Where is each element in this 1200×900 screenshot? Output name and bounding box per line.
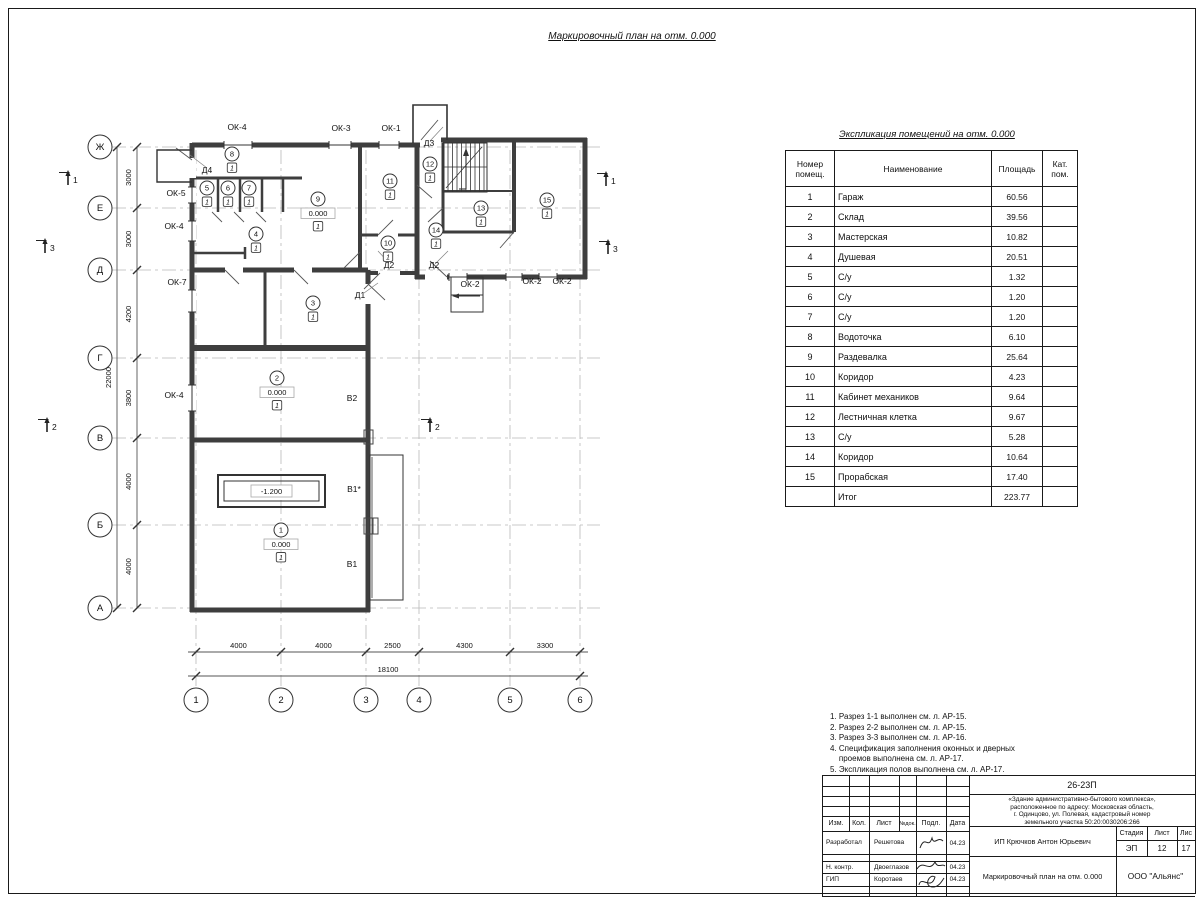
explication-row: 4Душевая20.51: [786, 247, 1078, 267]
svg-text:5: 5: [205, 184, 209, 193]
explication-cell: 15: [786, 467, 835, 487]
room-tag: 131: [474, 201, 488, 226]
svg-text:9: 9: [316, 195, 320, 204]
dimension-total: 18100: [378, 665, 399, 674]
opening-label: Д1: [355, 290, 366, 300]
tb-name-developer: Решетова: [871, 831, 919, 854]
explication-cell: 6.10: [992, 327, 1043, 347]
room-category: 1: [230, 165, 234, 172]
explication-cell: Душевая: [835, 247, 992, 267]
explication-cell: Лестничная клетка: [835, 407, 992, 427]
explication-cell: 10.64: [992, 447, 1043, 467]
col-category: Кат. пом.: [1043, 151, 1078, 187]
explication-cell: [786, 487, 835, 507]
explication-cell: С/у: [835, 307, 992, 327]
section-number: 2: [435, 422, 440, 432]
room-elevation: 0.000: [272, 540, 291, 549]
section-number: 3: [50, 243, 55, 253]
explication-cell: 20.51: [992, 247, 1043, 267]
dimension-value: 4000: [124, 473, 133, 490]
explication-cell: 7: [786, 307, 835, 327]
pit-elevation: -1.200: [261, 487, 282, 496]
dimension-value: 4200: [124, 306, 133, 323]
explication-cell: Коридор: [835, 367, 992, 387]
room-category: 1: [388, 192, 392, 199]
room-category: 1: [247, 199, 251, 206]
svg-text:15: 15: [543, 196, 551, 205]
tb-col-kol: Кол.: [849, 816, 869, 831]
room-tag: 121: [423, 157, 437, 182]
explication-cell: Раздевалка: [835, 347, 992, 367]
explication-cell: 1.32: [992, 267, 1043, 287]
tb-col-izm: Изм.: [823, 816, 849, 831]
opening-label: В1*: [347, 484, 361, 494]
opening-label: В2: [347, 393, 358, 403]
explication-cell: 5.28: [992, 427, 1043, 447]
section-number: 2: [52, 422, 57, 432]
explication-row: 1Гараж60.56: [786, 187, 1078, 207]
room-tag: 41: [249, 227, 263, 252]
tb-name-gip: Коротаев: [871, 873, 919, 886]
explication-cell: 3: [786, 227, 835, 247]
col-number: Номер помещ.: [786, 151, 835, 187]
tb-date-developer: 04.23: [946, 836, 969, 851]
dimension-value: 2500: [384, 641, 401, 650]
explication-cell: 4: [786, 247, 835, 267]
section-marker: 1: [59, 170, 78, 185]
room-category: 1: [254, 245, 258, 252]
tb-company: ООО "Альянс": [1116, 856, 1195, 896]
svg-text:13: 13: [477, 204, 485, 213]
explication-cell: 12: [786, 407, 835, 427]
explication-row: 7С/у1.20: [786, 307, 1078, 327]
explication-cell: 6: [786, 287, 835, 307]
opening-label: ОК-1: [381, 123, 400, 133]
grid-bubble-label: Г: [97, 353, 102, 364]
explication-cell: 60.56: [992, 187, 1043, 207]
explication-cell: 10.82: [992, 227, 1043, 247]
explication-cell: 2: [786, 207, 835, 227]
opening-label: ОК-2: [460, 279, 479, 289]
dimension-value: 4000: [315, 641, 332, 650]
explication-cell: Кабинет механиков: [835, 387, 992, 407]
tb-stage-label: Стадия: [1116, 826, 1147, 840]
section-marker: 2: [38, 417, 57, 432]
section-marker: 3: [599, 239, 618, 254]
tb-col-podl: Подл.: [916, 816, 946, 831]
explication-cell: 1.20: [992, 287, 1043, 307]
explication-cell: Мастерская: [835, 227, 992, 247]
room-category: 1: [434, 241, 438, 248]
svg-text:4: 4: [254, 230, 258, 239]
tb-sheet-value: 12: [1147, 840, 1177, 856]
room-category: 1: [205, 199, 209, 206]
opening-label: ОК-5: [166, 188, 185, 198]
explication-cell: 4.23: [992, 367, 1043, 387]
explication-cell: [1043, 407, 1078, 427]
room-tag: 61: [221, 181, 235, 206]
floor-plan: ЖЕДГВБА123456300030004200380040004000220…: [0, 0, 740, 745]
grid-bubble-label: Б: [97, 520, 103, 531]
svg-text:12: 12: [426, 160, 434, 169]
explication-row: Итог223.77: [786, 487, 1078, 507]
tb-sheet-label: Лист: [1147, 826, 1177, 840]
room-tag: 20.0001: [260, 371, 294, 410]
explication-cell: 5: [786, 267, 835, 287]
tb-col-ndoc: №док.: [899, 816, 916, 831]
grid-bubble-label: В: [97, 433, 103, 444]
tb-role-developer: Разработал: [823, 831, 872, 854]
tb-date-gip: 04.23: [946, 873, 969, 886]
svg-text:10: 10: [384, 239, 392, 248]
room-category: 1: [316, 224, 320, 231]
dimension-value: 3800: [124, 390, 133, 407]
staircase: [443, 143, 487, 192]
grid-bubble-label: Д: [97, 265, 104, 276]
tb-client: ИП Крючков Антон Юрьевич: [969, 826, 1116, 856]
section-marker: 1: [597, 171, 616, 186]
dimension-value: 4000: [230, 641, 247, 650]
explication-cell: Итог: [835, 487, 992, 507]
signature-ncontrol-gip: [915, 857, 947, 893]
explication-title: Экспликация помещений на отм. 0.000: [790, 129, 1064, 140]
room-tag: 101: [381, 236, 395, 261]
opening-label: Д3: [424, 138, 435, 148]
tb-role-ncontrol: Н. контр.: [823, 861, 872, 873]
dimension-value: 4300: [456, 641, 473, 650]
room-category: 1: [275, 403, 279, 410]
explication-cell: 223.77: [992, 487, 1043, 507]
opening-label: ОК-7: [167, 277, 186, 287]
dimension-value: 3000: [124, 169, 133, 186]
explication-cell: [1043, 207, 1078, 227]
svg-text:14: 14: [432, 226, 440, 235]
explication-row: 11Кабинет механиков9.64: [786, 387, 1078, 407]
tb-stage-value: ЭП: [1116, 840, 1147, 856]
explication-row: 9Раздевалка25.64: [786, 347, 1078, 367]
explication-cell: Коридор: [835, 447, 992, 467]
explication-cell: 9.67: [992, 407, 1043, 427]
explication-cell: [1043, 327, 1078, 347]
explication-header-row: Номер помещ. Наименование Площадь Кат. п…: [786, 151, 1078, 187]
tb-date-ncontrol: 04.23: [946, 861, 969, 873]
svg-text:6: 6: [226, 184, 230, 193]
room-category: 1: [386, 254, 390, 261]
explication-table: Номер помещ. Наименование Площадь Кат. п…: [785, 150, 1078, 507]
explication-row: 15Прорабская17.40: [786, 467, 1078, 487]
explication-cell: [1043, 367, 1078, 387]
explication-cell: 13: [786, 427, 835, 447]
explication-row: 13С/у5.28: [786, 427, 1078, 447]
explication-row: 12Лестничная клетка9.67: [786, 407, 1078, 427]
explication-cell: Прорабская: [835, 467, 992, 487]
explication-cell: [1043, 227, 1078, 247]
room-tag: 10.0001: [264, 523, 298, 562]
svg-text:7: 7: [247, 184, 251, 193]
opening-label: ОК-2: [552, 276, 571, 286]
room-tag: 111: [383, 174, 397, 199]
room-tag: 81: [225, 147, 239, 172]
svg-text:8: 8: [230, 150, 234, 159]
room-tag: 141: [429, 223, 443, 248]
explication-cell: С/у: [835, 287, 992, 307]
explication-cell: [1043, 387, 1078, 407]
svg-text:2: 2: [275, 374, 279, 383]
grid-bubble-label: 5: [507, 695, 512, 706]
explication-cell: 1: [786, 187, 835, 207]
dimension-total: 22000: [104, 367, 113, 388]
tb-doc-title: Маркировочный план на отм. 0.000: [969, 856, 1116, 896]
opening-label: Д4: [202, 165, 213, 175]
tb-sheets-value: 17: [1177, 840, 1195, 856]
grid-bubble-label: Ж: [96, 142, 105, 153]
room-elevation: 0.000: [268, 388, 287, 397]
explication-cell: 9.64: [992, 387, 1043, 407]
svg-text:3: 3: [311, 299, 315, 308]
room-tag: 90.0001: [301, 192, 335, 231]
explication-cell: Склад: [835, 207, 992, 227]
explication-row: 2Склад39.56: [786, 207, 1078, 227]
room-category: 1: [428, 175, 432, 182]
dimension-value: 3300: [537, 641, 554, 650]
room-tag: 51: [200, 181, 214, 206]
explication-cell: [1043, 347, 1078, 367]
explication-row: 6С/у1.20: [786, 287, 1078, 307]
grid-bubble-label: 1: [193, 695, 198, 706]
opening-label: ОК-4: [164, 390, 183, 400]
room-category: 1: [226, 199, 230, 206]
section-number: 3: [613, 244, 618, 254]
col-name: Наименование: [835, 151, 992, 187]
explication-cell: С/у: [835, 267, 992, 287]
room-tag: 151: [540, 193, 554, 218]
explication-cell: 39.56: [992, 207, 1043, 227]
opening-label: ОК-2: [522, 276, 541, 286]
room-category: 1: [279, 555, 283, 562]
grid-bubble-label: Е: [97, 203, 103, 214]
room-elevation: 0.000: [309, 209, 328, 218]
explication-cell: 17.40: [992, 467, 1043, 487]
explication-row: 14Коридор10.64: [786, 447, 1078, 467]
opening-label: В1: [347, 559, 358, 569]
drawing-sheet: Маркировочный план на отм. 0.000: [0, 0, 1200, 900]
section-marker: 2: [421, 417, 440, 432]
section-marker: 3: [36, 238, 55, 253]
explication-cell: 25.64: [992, 347, 1043, 367]
room-tag: 71: [242, 181, 256, 206]
explication-cell: 8: [786, 327, 835, 347]
dimension-value: 4000: [124, 558, 133, 575]
walls-layer: [190, 138, 587, 612]
explication-row: 3Мастерская10.82: [786, 227, 1078, 247]
explication-row: 10Коридор4.23: [786, 367, 1078, 387]
room-tag: 31: [306, 296, 320, 321]
explication-cell: [1043, 287, 1078, 307]
room-category: 1: [311, 314, 315, 321]
svg-text:1: 1: [279, 526, 283, 535]
explication-cell: [1043, 427, 1078, 447]
grid-bubble-label: 3: [363, 695, 368, 706]
explication-cell: 14: [786, 447, 835, 467]
explication-cell: 9: [786, 347, 835, 367]
explication-cell: [1043, 487, 1078, 507]
explication-row: 5С/у1.32: [786, 267, 1078, 287]
signature-developer: [918, 832, 945, 853]
explication-cell: Гараж: [835, 187, 992, 207]
explication-cell: 10: [786, 367, 835, 387]
opening-label: ОК-4: [164, 221, 183, 231]
room-category: 1: [479, 219, 483, 226]
tb-sheets-label: Лис: [1177, 826, 1195, 840]
plan-annotations: ЖЕДГВБА123456300030004200380040004000220…: [36, 122, 618, 712]
grid-lines: [112, 147, 600, 686]
dimension-value: 3000: [124, 231, 133, 248]
opening-label: Д2: [429, 260, 440, 270]
tb-col-list: Лист: [869, 816, 899, 831]
svg-text:11: 11: [386, 177, 394, 186]
grid-bubble-label: 2: [278, 695, 283, 706]
explication-cell: Водоточка: [835, 327, 992, 347]
section-number: 1: [611, 176, 616, 186]
opening-label: ОК-4: [227, 122, 246, 132]
explication-cell: [1043, 247, 1078, 267]
explication-cell: С/у: [835, 427, 992, 447]
opening-label: ОК-3: [331, 123, 350, 133]
title-block: Изм. Кол. Лист №док. Подл. Дата Разработ…: [822, 775, 1195, 897]
tb-name-ncontrol: Двоеглазов: [871, 861, 919, 873]
grid-bubble-label: 6: [577, 695, 582, 706]
col-area: Площадь: [992, 151, 1043, 187]
explication-cell: [1043, 307, 1078, 327]
tb-role-gip: ГИП: [823, 873, 872, 886]
explication-cell: 1.20: [992, 307, 1043, 327]
explication-cell: [1043, 267, 1078, 287]
explication-cell: [1043, 467, 1078, 487]
explication-cell: [1043, 447, 1078, 467]
tb-project-code: 26-23П: [969, 776, 1195, 794]
explication-row: 8Водоточка6.10: [786, 327, 1078, 347]
grid-bubble-label: А: [97, 603, 104, 614]
room-category: 1: [545, 211, 549, 218]
explication-cell: 11: [786, 387, 835, 407]
explication-cell: [1043, 187, 1078, 207]
tb-col-data: Дата: [946, 816, 969, 831]
section-number: 1: [73, 175, 78, 185]
grid-bubble-label: 4: [416, 695, 421, 706]
notes: 1. Разрез 1-1 выполнен см. л. АР-15. 2. …: [830, 712, 1015, 775]
tb-object-description: «Здание административно-бытового комплек…: [969, 794, 1195, 828]
